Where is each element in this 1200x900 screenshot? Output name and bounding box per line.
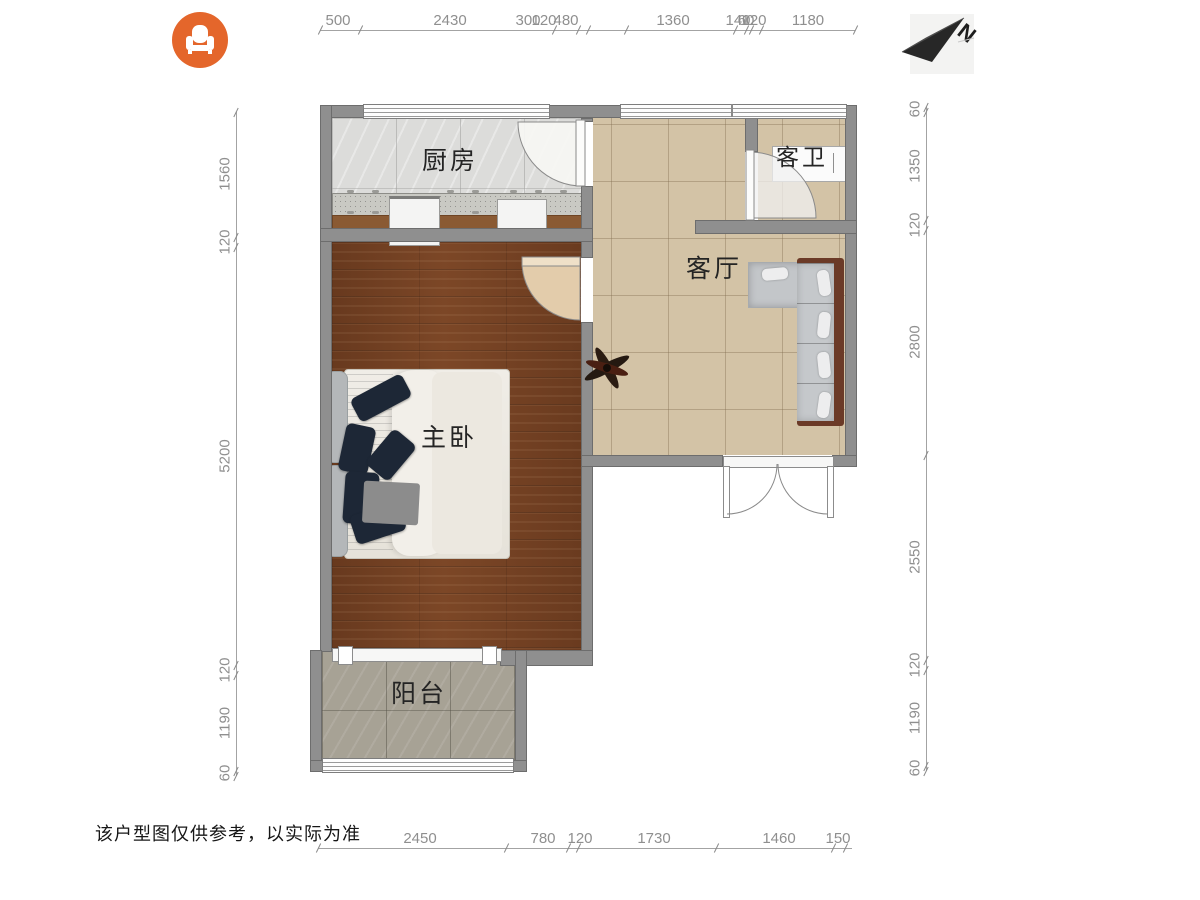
bedroom-doorway (581, 258, 593, 322)
disclaimer-text: 该户型图仅供参考，以实际为准 (95, 820, 361, 846)
faucet-mark (833, 153, 834, 173)
bottom-dimension-label: 120 (567, 831, 592, 846)
living-room-label: 客厅 (686, 249, 742, 285)
wall-left (320, 105, 332, 652)
bottom-dimension-label: 2450 (403, 831, 436, 846)
wall-kitchen-bedroom (320, 228, 593, 242)
left-dimension-label: 60 (218, 765, 233, 782)
cabinet-handle (347, 211, 354, 214)
cabinet-handle (347, 190, 354, 193)
sofa-pillow (762, 267, 789, 281)
cabinet-handle (472, 190, 479, 193)
wall-right (845, 105, 857, 467)
living-window (620, 104, 847, 119)
blanket (362, 481, 420, 526)
sliding-door-end (482, 646, 497, 665)
balcony-window (322, 758, 514, 773)
top-dimension-label: 120 (741, 13, 766, 28)
wall-balcony-stub (500, 650, 593, 666)
bedroom-label: 主卧 (421, 418, 477, 454)
sliding-door-end (338, 646, 353, 665)
cabinet-handle (472, 211, 479, 214)
right-dimension-label: 120 (908, 652, 923, 677)
compass: N (898, 8, 980, 78)
bottom-dimension-label: 150 (825, 831, 850, 846)
bottom-dimension-label: 1730 (637, 831, 670, 846)
window-mullion (731, 104, 733, 117)
left-dimension-label: 120 (218, 229, 233, 254)
right-dimension-label: 60 (908, 101, 923, 118)
wall-living-bottom-left (581, 455, 723, 467)
right-dimension-label: 2800 (908, 325, 923, 358)
balcony-sliding-door (332, 648, 502, 662)
kitchen-doorway (581, 122, 593, 186)
wall-living-bottom-right (832, 455, 857, 467)
right-dimension-label: 1190 (908, 702, 923, 734)
wall-divider (581, 186, 593, 258)
top-dimension-label: 2430 (433, 13, 466, 28)
bathroom-label: 客卫 (776, 138, 828, 172)
cabinet-handle (535, 190, 542, 193)
top-dimension-label: 500 (325, 13, 350, 28)
top-dimension-label: 480 (553, 13, 578, 28)
left-dimension-label: 120 (218, 657, 233, 682)
top-dimension-label: 1180 (792, 13, 824, 28)
balcony-label: 阳台 (391, 674, 447, 710)
right-dimension-label: 1350 (908, 149, 923, 182)
french-door-arc-right (778, 464, 828, 514)
right-dimension-label: 2550 (908, 540, 923, 573)
bottom-dimension-label: 780 (530, 831, 555, 846)
cabinet-handle (510, 190, 517, 193)
top-dimension-tick (853, 25, 858, 34)
french-door-leaf-left (723, 466, 730, 518)
bathroom-doorway (745, 152, 758, 220)
armchair-icon (182, 22, 218, 58)
bottom-dimension-line (318, 848, 852, 849)
cabinet-handle (560, 190, 567, 193)
left-dimension-label: 1560 (218, 157, 233, 190)
sofa-pillow (817, 351, 832, 378)
cabinet-handle (372, 211, 379, 214)
floorplan-canvas: N (0, 0, 1200, 900)
bottom-dimension-label: 1460 (762, 831, 795, 846)
wall-divider (581, 322, 593, 652)
right-dimension-label: 60 (908, 760, 923, 777)
left-dimension-label: 5200 (218, 439, 233, 472)
left-dimension-line (236, 112, 237, 776)
left-dimension-label: 1190 (218, 707, 233, 739)
cabinet-handle (372, 190, 379, 193)
wall-balcony-right (515, 650, 527, 772)
wall-bathroom-bottom (695, 220, 857, 234)
right-dimension-line (926, 107, 927, 771)
french-door-frame (723, 456, 834, 468)
duvet (432, 372, 502, 554)
french-door-arc-left (727, 464, 777, 514)
french-door-leaf-right (827, 466, 834, 518)
cabinet-handle (447, 190, 454, 193)
kitchen-label: 厨房 (422, 141, 478, 177)
right-dimension-label: 120 (908, 212, 923, 237)
brand-logo (172, 12, 228, 68)
kitchen-window (363, 104, 550, 119)
wall-balcony-left (310, 650, 322, 772)
top-dimension-label: 1360 (656, 13, 689, 28)
